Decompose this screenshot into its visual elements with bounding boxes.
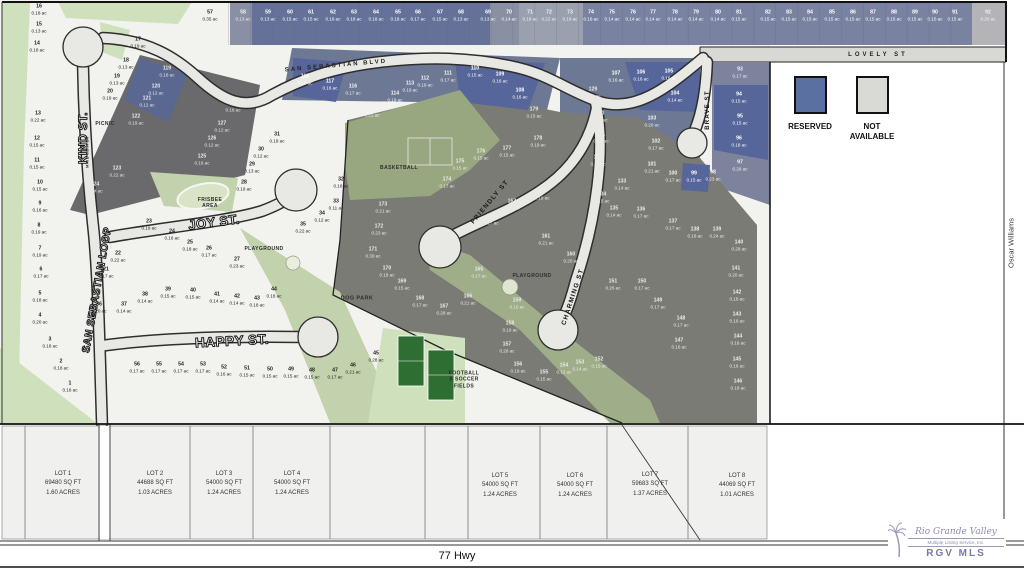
lot-27[interactable]: 270.23 ac bbox=[229, 258, 244, 269]
lot-50[interactable]: 500.15 ac bbox=[262, 368, 277, 379]
lot-47[interactable]: 470.17 ac bbox=[327, 369, 342, 380]
lot-54[interactable]: 540.17 ac bbox=[173, 363, 188, 374]
lot-18[interactable]: 180.13 ac bbox=[118, 59, 133, 70]
amenity-football-soccer-fields: FOOTBALL & SOCCER FIELDS bbox=[449, 371, 479, 390]
lot-179[interactable]: 1790.15 ac bbox=[526, 108, 541, 119]
lot-94[interactable]: 940.15 ac bbox=[731, 93, 746, 104]
lot-162[interactable]: 1620.19 ac bbox=[534, 190, 549, 201]
lot-118[interactable]: 1180.16 ac bbox=[297, 75, 312, 86]
lot-123[interactable]: 1230.22 ac bbox=[109, 167, 124, 178]
palm-tree-icon bbox=[888, 521, 908, 559]
street-label-joy-st-: JOY ST. bbox=[187, 211, 240, 232]
lot-61[interactable]: 610.15 ac bbox=[303, 11, 318, 22]
lot-156[interactable]: 1560.19 ac bbox=[510, 363, 525, 374]
lot-134[interactable]: 1340.15 ac bbox=[594, 193, 609, 204]
lot-78[interactable]: 780.14 ac bbox=[667, 11, 682, 22]
commercial-lot-2[interactable]: LOT 244688 SQ FT1.03 ACRES bbox=[137, 470, 173, 498]
commercial-lot-4[interactable]: LOT 454000 SQ FT1.24 ACRES bbox=[274, 470, 310, 498]
lot-86[interactable]: 860.15 ac bbox=[845, 11, 860, 22]
lot-13[interactable]: 130.22 ac bbox=[30, 112, 45, 123]
lot-104[interactable]: 1040.14 ac bbox=[667, 92, 682, 103]
lot-57[interactable]: 570.35 ac bbox=[202, 11, 217, 22]
lot-115[interactable]: 1150.22 ac bbox=[364, 107, 379, 118]
lot-90[interactable]: 900.15 ac bbox=[927, 11, 942, 22]
lot-152[interactable]: 1520.15 ac bbox=[591, 358, 606, 369]
lot-147[interactable]: 1470.16 ac bbox=[671, 339, 686, 350]
lot-79[interactable]: 790.14 ac bbox=[688, 11, 703, 22]
lot-20[interactable]: 200.19 ac bbox=[102, 90, 117, 101]
lot-175[interactable]: 1750.15 ac bbox=[452, 160, 467, 171]
lot-55[interactable]: 550.17 ac bbox=[151, 363, 166, 374]
lot-110[interactable]: 1100.15 ac bbox=[467, 67, 482, 78]
lot-137[interactable]: 1370.17 ac bbox=[665, 220, 680, 231]
lot-92[interactable]: 920.20 ac bbox=[980, 11, 995, 22]
lot-4[interactable]: 40.20 ac bbox=[32, 314, 47, 325]
lot-73[interactable]: 730.19 ac bbox=[562, 11, 577, 22]
lot-71[interactable]: 710.18 ac bbox=[522, 11, 537, 22]
lot-165[interactable]: 1650.17 ac bbox=[471, 268, 486, 279]
commercial-lot-1[interactable]: LOT 169480 SQ FT1.60 ACRES bbox=[45, 470, 81, 498]
amenity-playground: PLAYGROUND bbox=[512, 273, 551, 279]
lot-19[interactable]: 190.13 ac bbox=[109, 75, 124, 86]
lot-160[interactable]: 1600.20 ac bbox=[563, 253, 578, 264]
lot-120[interactable]: 1200.12 ac bbox=[148, 85, 163, 96]
lot-43[interactable]: 430.18 ac bbox=[249, 297, 264, 308]
lot-10[interactable]: 100.15 ac bbox=[32, 181, 47, 192]
lot-88[interactable]: 880.15 ac bbox=[886, 11, 901, 22]
lot-164[interactable]: 1640.17 ac bbox=[483, 215, 498, 226]
lot-113[interactable]: 1130.19 ac bbox=[402, 82, 417, 93]
lot-101[interactable]: 1010.21 ac bbox=[644, 163, 659, 174]
lot-106[interactable]: 1060.16 ac bbox=[633, 71, 648, 82]
lot-129[interactable]: 1290.20 ac bbox=[585, 88, 600, 99]
lot-51[interactable]: 510.15 ac bbox=[239, 367, 254, 378]
lot-142[interactable]: 1420.18 ac bbox=[729, 291, 744, 302]
lot-60[interactable]: 600.15 ac bbox=[282, 11, 297, 22]
lot-48[interactable]: 480.15 ac bbox=[304, 369, 319, 380]
lot-85[interactable]: 850.15 ac bbox=[824, 11, 839, 22]
amenity-playground: PLAYGROUND bbox=[244, 246, 283, 252]
lot-130[interactable]: 1300.15 ac bbox=[592, 112, 607, 123]
lot-145[interactable]: 1450.16 ac bbox=[729, 358, 744, 369]
commercial-lot-6[interactable]: LOT 654000 SQ FT1.24 ACRES bbox=[557, 472, 593, 500]
lot-59[interactable]: 590.13 ac bbox=[260, 11, 275, 22]
lot-40[interactable]: 400.15 ac bbox=[185, 289, 200, 300]
lot-105[interactable]: 1050.16 ac bbox=[661, 70, 676, 81]
plat-map-screen: RESERVED NOT AVAILABLE 10.18 ac20.18 ac3… bbox=[0, 0, 1024, 581]
street-label-77-hwy: 77 Hwy bbox=[439, 550, 476, 562]
lot-102[interactable]: 1020.17 ac bbox=[648, 140, 663, 151]
lot-151[interactable]: 1510.26 ac bbox=[605, 280, 620, 291]
lot-159[interactable]: 1590.15 ac bbox=[509, 299, 524, 310]
lot-22[interactable]: 220.22 ac bbox=[110, 252, 125, 263]
street-label-happy-st-: HAPPY ST. bbox=[195, 332, 270, 351]
lot-141[interactable]: 1410.20 ac bbox=[728, 267, 743, 278]
lot-56[interactable]: 560.17 ac bbox=[129, 363, 144, 374]
lot-70[interactable]: 700.14 ac bbox=[501, 11, 516, 22]
lot-103[interactable]: 1030.20 ac bbox=[644, 117, 659, 128]
lot-84[interactable]: 840.15 ac bbox=[802, 11, 817, 22]
lot-32[interactable]: 320.18 ac bbox=[333, 178, 348, 189]
street-label-san-sebastian-loop: SAN SEBASTIAN LOOP bbox=[80, 226, 114, 354]
commercial-lot-8[interactable]: LOT 844069 SQ FT1.01 ACRES bbox=[719, 472, 755, 500]
lot-154[interactable]: 1540.12 ac bbox=[556, 364, 571, 375]
lot-95[interactable]: 950.15 ac bbox=[732, 115, 747, 126]
street-label-san-sebastian-blvd: SAN SEBASTIAN BLVD bbox=[285, 59, 388, 74]
lot-12[interactable]: 120.15 ac bbox=[29, 137, 44, 148]
lot-58[interactable]: 580.13 ac bbox=[235, 11, 250, 22]
commercial-lot-5[interactable]: LOT 554000 SQ FT1.24 ACRES bbox=[482, 472, 518, 500]
lot-131[interactable]: 1310.16 ac bbox=[593, 133, 608, 144]
amenity-picnic: PICNIC bbox=[95, 121, 114, 127]
lot-111[interactable]: 1110.17 ac bbox=[440, 72, 455, 83]
lot-6[interactable]: 60.17 ac bbox=[33, 268, 48, 279]
lot-44[interactable]: 440.18 ac bbox=[266, 288, 281, 299]
lot-26[interactable]: 260.17 ac bbox=[201, 247, 216, 258]
lot-114[interactable]: 1140.19 ac bbox=[387, 92, 402, 103]
lot-38[interactable]: 380.14 ac bbox=[137, 293, 152, 304]
lot-132[interactable]: 1320.16 ac bbox=[590, 156, 605, 167]
lot-74[interactable]: 740.16 ac bbox=[583, 11, 598, 22]
lot-121[interactable]: 1210.12 ac bbox=[139, 97, 154, 108]
lot-109[interactable]: 1090.16 ac bbox=[492, 73, 507, 84]
lot-2[interactable]: 20.18 ac bbox=[53, 360, 68, 371]
lot-133[interactable]: 1330.14 ac bbox=[614, 180, 629, 191]
lot-138[interactable]: 1380.18 ac bbox=[687, 228, 702, 239]
lot-176[interactable]: 1760.15 ac bbox=[473, 150, 488, 161]
commercial-lot-7[interactable]: LOT 759683 SQ FT1.37 ACRES bbox=[632, 471, 668, 499]
lot-64[interactable]: 640.18 ac bbox=[368, 11, 383, 22]
lot-66[interactable]: 660.17 ac bbox=[410, 11, 425, 22]
lot-163[interactable]: 1630.18 ac bbox=[504, 200, 519, 211]
lot-7[interactable]: 70.19 ac bbox=[32, 247, 47, 258]
lot-174[interactable]: 1740.17 ac bbox=[439, 178, 454, 189]
lot-45[interactable]: 450.28 ac bbox=[368, 352, 383, 363]
lot-35[interactable]: 350.22 ac bbox=[295, 223, 310, 234]
lot-171[interactable]: 1710.30 ac bbox=[365, 248, 380, 259]
lot-49[interactable]: 490.15 ac bbox=[283, 368, 298, 379]
lot-144[interactable]: 1440.16 ac bbox=[730, 335, 745, 346]
lot-166[interactable]: 1660.21 ac bbox=[460, 295, 475, 306]
lot-68[interactable]: 680.13 ac bbox=[453, 11, 468, 22]
lot-146[interactable]: 1460.18 ac bbox=[730, 380, 745, 391]
lot-155[interactable]: 1550.15 ac bbox=[536, 371, 551, 382]
lot-23[interactable]: 230.19 ac bbox=[141, 220, 156, 231]
lot-116[interactable]: 1160.17 ac bbox=[345, 85, 360, 96]
lot-170[interactable]: 1700.18 ac bbox=[379, 267, 394, 278]
lot-53[interactable]: 530.17 ac bbox=[195, 363, 210, 374]
lot-87[interactable]: 870.15 ac bbox=[865, 11, 880, 22]
lot-33[interactable]: 330.11 ac bbox=[329, 200, 344, 211]
lot-81[interactable]: 810.15 ac bbox=[731, 11, 746, 22]
lot-24[interactable]: 240.16 ac bbox=[164, 230, 179, 241]
lot-67[interactable]: 670.15 ac bbox=[432, 11, 447, 22]
lot-119[interactable]: 1190.18 ac bbox=[159, 67, 174, 78]
mls-script-title: Rio Grande Valley bbox=[908, 527, 1004, 539]
lot-75[interactable]: 750.14 ac bbox=[604, 11, 619, 22]
lot-128[interactable]: 1280.16 ac bbox=[225, 102, 240, 113]
lot-77[interactable]: 770.14 ac bbox=[645, 11, 660, 22]
lot-140[interactable]: 1400.29 ac bbox=[731, 241, 746, 252]
lot-168[interactable]: 1680.17 ac bbox=[412, 297, 427, 308]
lot-25[interactable]: 250.18 ac bbox=[182, 241, 197, 252]
lot-14[interactable]: 140.18 ac bbox=[29, 42, 44, 53]
lot-169[interactable]: 1690.15 ac bbox=[394, 280, 409, 291]
map-labels-layer: 10.18 ac20.18 ac30.18 ac40.20 ac50.18 ac… bbox=[0, 0, 1024, 581]
lot-149[interactable]: 1490.17 ac bbox=[650, 299, 665, 310]
lot-82[interactable]: 820.15 ac bbox=[760, 11, 775, 22]
lot-117[interactable]: 1170.16 ac bbox=[322, 80, 337, 91]
lot-93[interactable]: 930.17 ac bbox=[732, 68, 747, 79]
lot-8[interactable]: 80.19 ac bbox=[31, 224, 46, 235]
lot-39[interactable]: 390.15 ac bbox=[160, 288, 175, 299]
lot-135[interactable]: 1350.14 ac bbox=[606, 207, 621, 218]
lot-161[interactable]: 1610.21 ac bbox=[538, 235, 553, 246]
lot-122[interactable]: 1220.19 ac bbox=[128, 115, 143, 126]
lot-15[interactable]: 150.13 ac bbox=[31, 23, 46, 34]
lot-16[interactable]: 160.18 ac bbox=[31, 5, 46, 16]
lot-97[interactable]: 970.26 ac bbox=[732, 161, 747, 172]
lot-178[interactable]: 1780.19 ac bbox=[530, 137, 545, 148]
lot-46[interactable]: 460.21 ac bbox=[345, 364, 360, 375]
lot-83[interactable]: 830.15 ac bbox=[781, 11, 796, 22]
street-label-oscar-williams: Oscar Williams bbox=[1007, 218, 1016, 268]
lot-148[interactable]: 1480.17 ac bbox=[673, 317, 688, 328]
lot-112[interactable]: 1120.19 ac bbox=[417, 77, 432, 88]
lot-143[interactable]: 1430.16 ac bbox=[729, 313, 744, 324]
lot-41[interactable]: 410.14 ac bbox=[209, 293, 224, 304]
lot-173[interactable]: 1730.21 ac bbox=[375, 203, 390, 214]
lot-91[interactable]: 910.15 ac bbox=[947, 11, 962, 22]
lot-136[interactable]: 1360.17 ac bbox=[633, 208, 648, 219]
lot-124[interactable]: 1240.24 ac bbox=[87, 183, 102, 194]
lot-167[interactable]: 1670.28 ac bbox=[436, 305, 451, 316]
lot-98[interactable]: 980.23 ac bbox=[705, 171, 720, 182]
lot-9[interactable]: 90.16 ac bbox=[32, 202, 47, 213]
commercial-lot-3[interactable]: LOT 354000 SQ FT1.24 ACRES bbox=[206, 470, 242, 498]
lot-172[interactable]: 1720.23 ac bbox=[371, 225, 386, 236]
lot-69[interactable]: 690.13 ac bbox=[480, 11, 495, 22]
lot-80[interactable]: 800.14 ac bbox=[710, 11, 725, 22]
rgv-mls-logo: Rio Grande Valley Multiple Listing Servi… bbox=[888, 519, 1006, 561]
lot-150[interactable]: 1500.17 ac bbox=[634, 280, 649, 291]
lot-42[interactable]: 420.14 ac bbox=[229, 295, 244, 306]
lot-1[interactable]: 10.18 ac bbox=[62, 382, 77, 393]
lot-139[interactable]: 1390.24 ac bbox=[709, 228, 724, 239]
amenity-dog-park: DOG PARK bbox=[341, 296, 373, 303]
lot-126[interactable]: 1260.12 ac bbox=[204, 137, 219, 148]
lot-62[interactable]: 620.16 ac bbox=[325, 11, 340, 22]
street-label-charming-st: CHARMING ST bbox=[561, 268, 586, 326]
lot-153[interactable]: 1530.14 ac bbox=[572, 361, 587, 372]
amenity-frisbee-area: FRISBEE AREA bbox=[198, 197, 222, 210]
lot-37[interactable]: 370.14 ac bbox=[116, 303, 131, 314]
lot-158[interactable]: 1580.19 ac bbox=[502, 322, 517, 333]
lot-72[interactable]: 720.22 ac bbox=[541, 11, 556, 22]
lot-65[interactable]: 650.18 ac bbox=[390, 11, 405, 22]
lot-89[interactable]: 890.15 ac bbox=[907, 11, 922, 22]
street-label-brave-st: BRAVE ST bbox=[705, 90, 711, 130]
lot-157[interactable]: 1570.26 ac bbox=[499, 343, 514, 354]
lot-28[interactable]: 280.19 ac bbox=[236, 181, 251, 192]
mls-name: RGV MLS bbox=[908, 547, 1004, 559]
mls-subtitle: Multiple Listing Service, Inc. bbox=[908, 539, 1004, 547]
lot-11[interactable]: 110.15 ac bbox=[29, 159, 44, 170]
lot-125[interactable]: 1250.16 ac bbox=[194, 155, 209, 166]
lot-99[interactable]: 990.15 ac bbox=[686, 172, 701, 183]
lot-31[interactable]: 310.18 ac bbox=[269, 133, 284, 144]
lot-52[interactable]: 520.16 ac bbox=[216, 366, 231, 377]
street-label-lovely-st: LOVELY ST bbox=[848, 52, 908, 58]
lot-30[interactable]: 300.12 ac bbox=[253, 148, 268, 159]
lot-177[interactable]: 1770.15 ac bbox=[499, 147, 514, 158]
lot-63[interactable]: 630.18 ac bbox=[346, 11, 361, 22]
lot-17[interactable]: 170.19 ac bbox=[130, 38, 145, 49]
lot-127[interactable]: 1270.12 ac bbox=[214, 122, 229, 133]
lot-29[interactable]: 290.13 ac bbox=[244, 163, 259, 174]
amenity-mail-center: MAIL CENTER bbox=[85, 136, 90, 168]
lot-108[interactable]: 1080.16 ac bbox=[512, 89, 527, 100]
lot-96[interactable]: 960.18 ac bbox=[731, 137, 746, 148]
amenity-basketball: BASKETBALL bbox=[380, 165, 418, 171]
lot-107[interactable]: 1070.16 ac bbox=[608, 72, 623, 83]
lot-100[interactable]: 1000.17 ac bbox=[665, 172, 680, 183]
lot-76[interactable]: 760.14 ac bbox=[625, 11, 640, 22]
lot-5[interactable]: 50.18 ac bbox=[32, 292, 47, 303]
lot-3[interactable]: 30.18 ac bbox=[42, 338, 57, 349]
lot-34[interactable]: 340.12 ac bbox=[314, 212, 329, 223]
